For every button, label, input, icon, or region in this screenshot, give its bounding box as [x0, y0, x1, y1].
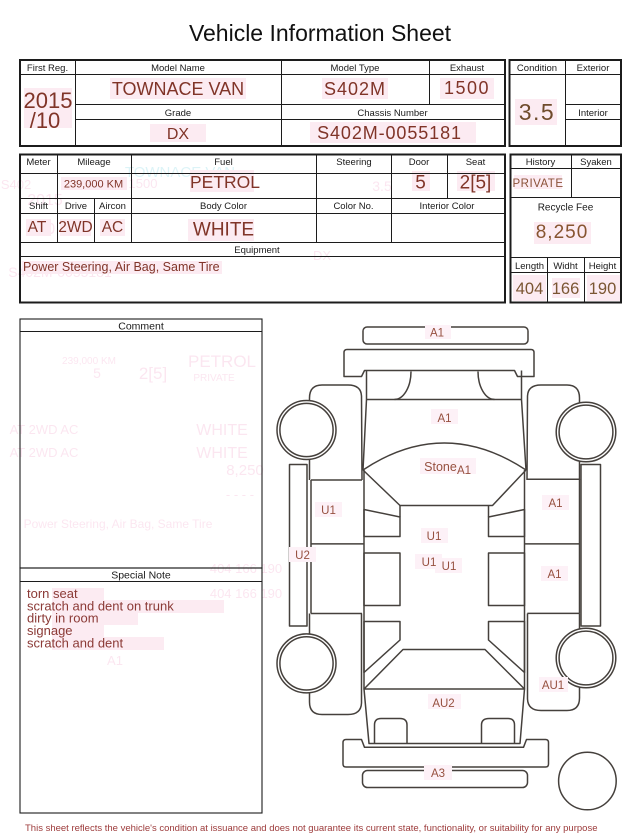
- svg-text:Length: Length: [515, 261, 544, 272]
- svg-text:Special Note: Special Note: [111, 570, 171, 582]
- svg-text:Recycle Fee: Recycle Fee: [538, 203, 594, 214]
- svg-text:Syaken: Syaken: [580, 157, 612, 168]
- svg-text:404 166 190: 404 166 190: [210, 586, 282, 601]
- svg-text:1500: 1500: [444, 78, 490, 98]
- svg-text:A3: A3: [431, 768, 445, 780]
- svg-text:TOWNACE VAN: TOWNACE VAN: [112, 79, 244, 99]
- svg-text:Shift: Shift: [29, 201, 48, 212]
- svg-text:Height: Height: [589, 261, 617, 272]
- svg-text:Stone: Stone: [424, 460, 457, 474]
- svg-text:Vehicle Information Sheet: Vehicle Information Sheet: [189, 20, 452, 46]
- svg-text:A1: A1: [107, 653, 123, 668]
- svg-text:U1: U1: [442, 561, 457, 573]
- svg-text:2[5]: 2[5]: [460, 173, 492, 194]
- svg-text:Mileage: Mileage: [77, 157, 110, 168]
- svg-text:AU1: AU1: [542, 680, 564, 692]
- svg-text:DX: DX: [313, 248, 331, 263]
- svg-text:Aircon: Aircon: [99, 201, 126, 212]
- svg-text:DX: DX: [167, 126, 190, 143]
- svg-text:5: 5: [415, 173, 426, 194]
- svg-text:PRIVATE: PRIVATE: [513, 178, 564, 190]
- svg-text:Drive: Drive: [65, 201, 87, 212]
- svg-text:A1: A1: [437, 413, 451, 425]
- svg-text:Equipment: Equipment: [234, 245, 280, 256]
- svg-text:Door: Door: [409, 157, 430, 168]
- svg-text:166: 166: [552, 280, 580, 298]
- svg-text:A1: A1: [548, 498, 562, 510]
- svg-text:Comment: Comment: [118, 321, 164, 333]
- svg-text:U2: U2: [295, 550, 310, 562]
- svg-text:AC: AC: [102, 219, 124, 236]
- svg-text:Meter: Meter: [26, 157, 50, 168]
- svg-text:Seat: Seat: [466, 157, 486, 168]
- svg-text:239,000 KM: 239,000 KM: [64, 179, 123, 191]
- svg-text:2[5]: 2[5]: [139, 364, 167, 383]
- svg-text:Power Steering, Air Bag, Same: Power Steering, Air Bag, Same Tire: [23, 260, 220, 274]
- svg-text:U1: U1: [422, 557, 437, 569]
- svg-text:First Reg.: First Reg.: [27, 63, 68, 74]
- svg-text:PRIVATE: PRIVATE: [193, 373, 235, 384]
- svg-text:scratch and dent: scratch and dent: [27, 636, 124, 651]
- svg-text:8,250: 8,250: [536, 222, 589, 243]
- svg-text:A1: A1: [457, 465, 471, 477]
- svg-text:404: 404: [516, 280, 544, 298]
- svg-text:S402: S402: [1, 177, 31, 192]
- svg-text:A1: A1: [547, 569, 561, 581]
- svg-text:Exhaust: Exhaust: [450, 63, 485, 74]
- svg-text:190: 190: [589, 280, 617, 298]
- svg-text:U1: U1: [321, 505, 336, 517]
- svg-text:Steering: Steering: [336, 157, 371, 168]
- svg-text:Chassis Number: Chassis Number: [357, 108, 427, 119]
- svg-text:Interior Color: Interior Color: [420, 201, 475, 212]
- svg-text:Model Name: Model Name: [151, 63, 205, 74]
- svg-text:AT: AT: [28, 219, 47, 236]
- svg-text:This sheet reflects the vehicl: This sheet reflects the vehicle's condit…: [25, 823, 597, 834]
- svg-text:5: 5: [93, 365, 101, 381]
- svg-text:Grade: Grade: [165, 108, 191, 119]
- svg-text:Fuel: Fuel: [214, 157, 232, 168]
- svg-text:2WD: 2WD: [58, 219, 92, 236]
- svg-text:239,000 KM: 239,000 KM: [62, 356, 116, 367]
- svg-text:Exterior: Exterior: [577, 63, 610, 74]
- svg-text:Model Type: Model Type: [331, 63, 380, 74]
- svg-text:PETROL: PETROL: [190, 172, 260, 192]
- svg-text:History: History: [526, 157, 556, 168]
- svg-text:PETROL: PETROL: [188, 352, 256, 371]
- svg-text:A1: A1: [430, 328, 444, 340]
- svg-text:Body Color: Body Color: [200, 201, 247, 212]
- svg-text:Color No.: Color No.: [333, 201, 373, 212]
- svg-text:WHITE: WHITE: [193, 220, 254, 241]
- svg-text:S402M: S402M: [324, 79, 386, 99]
- svg-text:- - - -: - - - -: [226, 487, 254, 502]
- svg-text:WHITE: WHITE: [196, 422, 248, 439]
- svg-text:AU2: AU2: [432, 698, 454, 710]
- svg-text:Condition: Condition: [517, 63, 557, 74]
- svg-text:3.5: 3.5: [372, 178, 392, 194]
- svg-text:/10: /10: [30, 108, 61, 133]
- svg-text:3.5: 3.5: [519, 99, 555, 125]
- svg-text:Power Steering, Air Bag, Same: Power Steering, Air Bag, Same Tire: [24, 517, 213, 531]
- svg-text:Widht: Widht: [553, 261, 578, 272]
- svg-text:1500: 1500: [129, 176, 158, 191]
- svg-text:8,250: 8,250: [226, 462, 264, 479]
- svg-text:S402M-0055181: S402M-0055181: [317, 123, 462, 143]
- svg-text:Interior: Interior: [578, 108, 608, 119]
- svg-text:WHITE: WHITE: [196, 445, 248, 462]
- svg-text:U1: U1: [427, 531, 442, 543]
